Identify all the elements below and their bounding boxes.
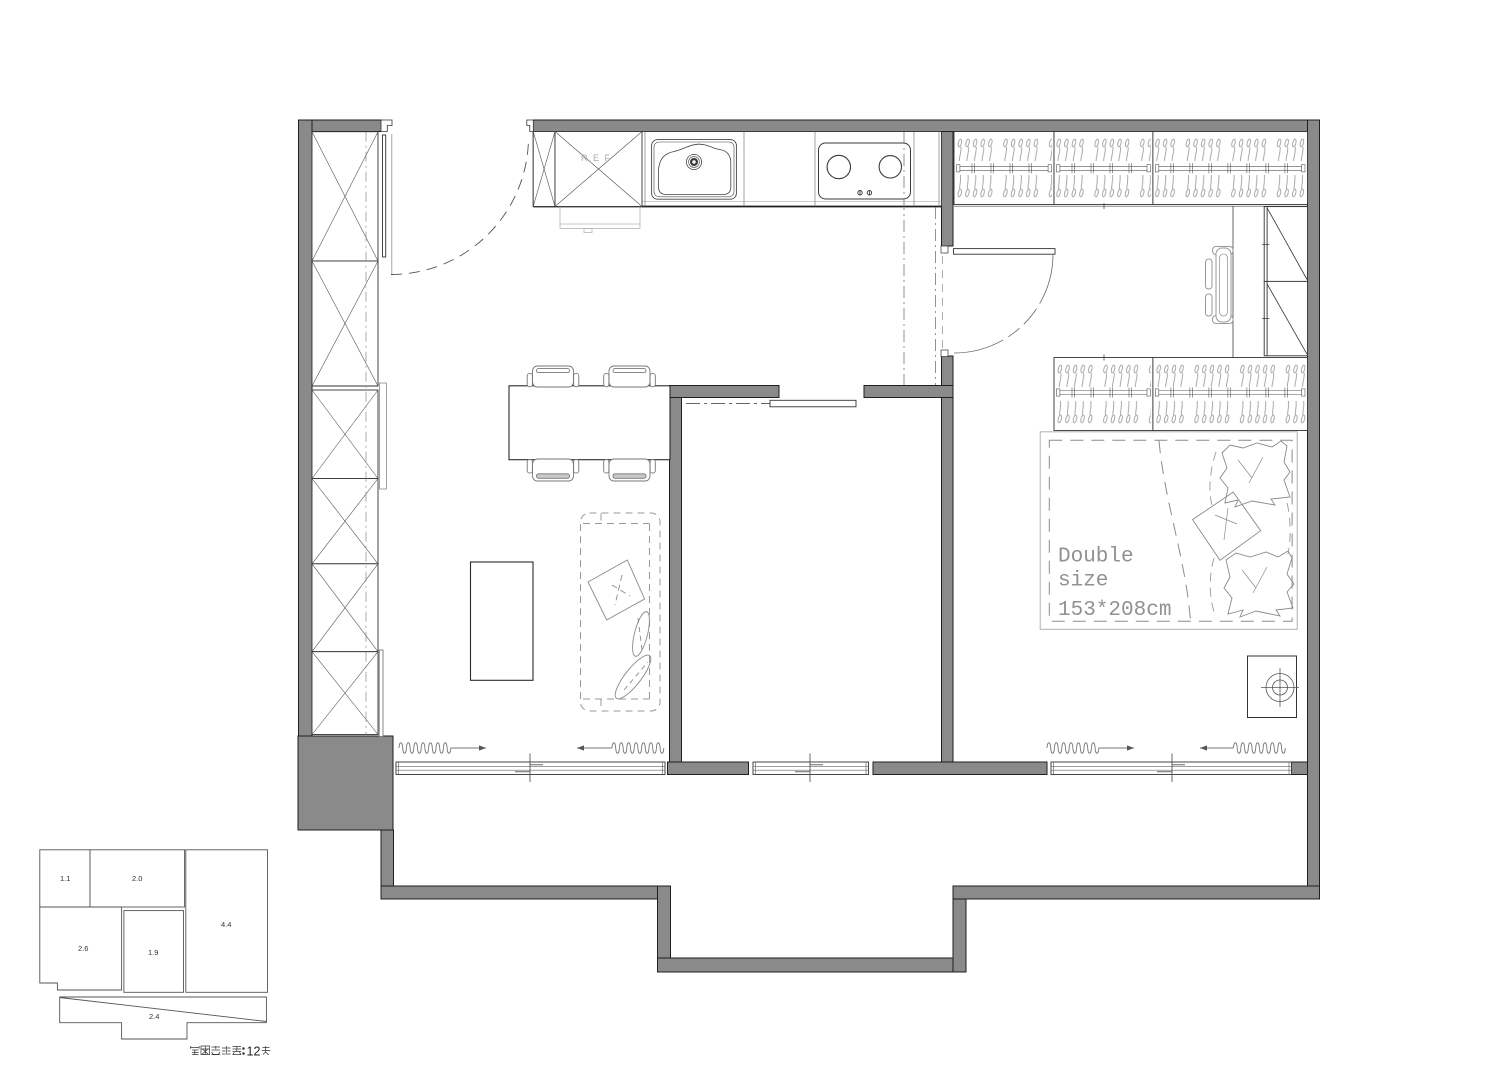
- svg-text:12: 12: [247, 1045, 261, 1059]
- svg-text:4.4: 4.4: [221, 920, 231, 929]
- svg-text:2.4: 2.4: [149, 1012, 159, 1021]
- svg-text:Double: Double: [1058, 546, 1134, 569]
- svg-text:2.6: 2.6: [78, 944, 88, 953]
- svg-text:2.0: 2.0: [132, 874, 142, 883]
- svg-text:1.9: 1.9: [148, 948, 158, 957]
- svg-text:153*208cm: 153*208cm: [1058, 599, 1171, 622]
- svg-text:size: size: [1058, 570, 1108, 593]
- svg-text:REF: REF: [581, 153, 616, 163]
- svg-text:1.1: 1.1: [60, 874, 70, 883]
